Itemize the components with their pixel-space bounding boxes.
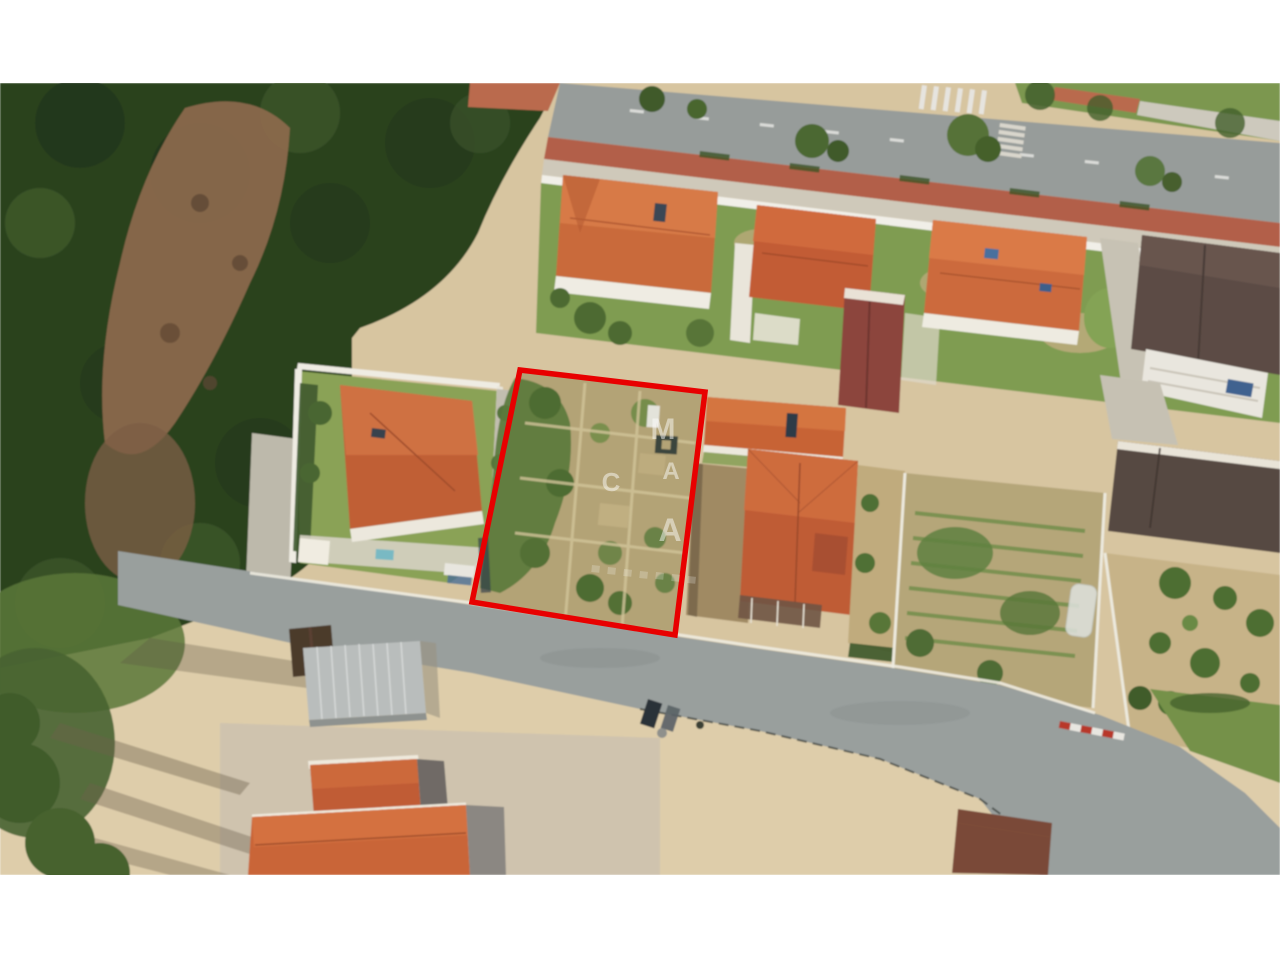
watermark-letter-a2: A — [658, 512, 681, 548]
vegetable-garden — [892, 473, 1105, 708]
watermark-letter-a1: A — [662, 458, 679, 485]
warehouse — [303, 641, 440, 727]
watermark-letter-c: C — [602, 467, 621, 497]
screenshot-canvas: M A C A — [0, 0, 1280, 960]
driveway — [246, 433, 297, 588]
skylight — [984, 248, 999, 259]
skylight — [653, 203, 667, 222]
bike-path-upper — [468, 83, 560, 111]
pool — [375, 549, 394, 560]
photo-scene — [0, 83, 1280, 875]
watermark-letter-m: M — [651, 413, 676, 446]
skylight — [371, 428, 386, 439]
skylight — [785, 413, 798, 438]
letterbox-bottom — [0, 875, 1280, 960]
aerial-photo: M A C A — [0, 83, 1280, 875]
plot-garden — [472, 370, 705, 635]
letterbox-top — [0, 0, 1280, 83]
